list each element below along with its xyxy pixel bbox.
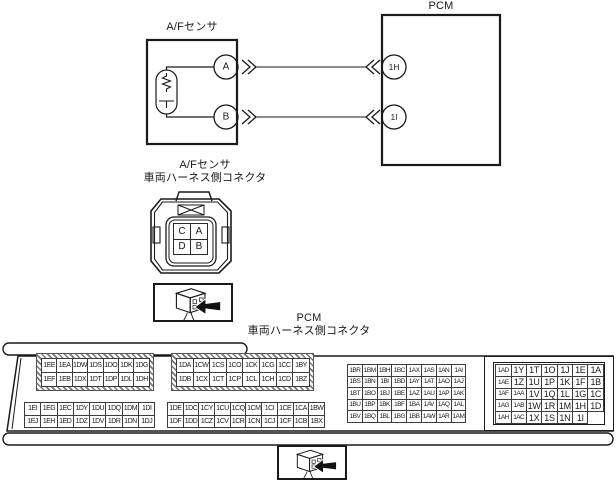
pin-1AM: 1AM xyxy=(451,410,467,423)
pin-1CW: 1CW xyxy=(193,358,211,373)
pin-1CM: 1CM xyxy=(245,402,262,416)
pin-1DV: 1DV xyxy=(89,415,106,429)
pin-1EH: 1EH xyxy=(40,415,57,429)
pin-1BG: 1BG xyxy=(391,410,407,423)
pin-1BL: 1BL xyxy=(377,410,393,423)
pin-1EA: 1EA xyxy=(56,358,72,373)
pin-1DF: 1DF xyxy=(167,415,184,429)
pin-1DC: 1DC xyxy=(183,402,200,416)
pin-1CT: 1CT xyxy=(209,372,227,387)
sensor-connector-caption-line2: 車両ハーネス側コネクタ xyxy=(100,172,310,185)
schematic-drawing: A B 1H 1I xyxy=(0,0,616,185)
pin-1BY: 1BY xyxy=(292,358,310,373)
pin-1CP: 1CP xyxy=(226,372,244,387)
pin-1CD: 1CD xyxy=(276,372,294,387)
pin-1BZ: 1BZ xyxy=(292,372,310,387)
pin-1CA: 1CA xyxy=(293,402,310,416)
pin-1DG: 1DG xyxy=(133,358,149,373)
pin-C: C xyxy=(173,223,191,240)
pin-1EC: 1EC xyxy=(57,402,74,416)
pin-1CU: 1CU xyxy=(214,402,231,416)
wire-leads xyxy=(184,313,194,320)
pcm-pin-block-upper-mid: 1DA1CW1CS1CO1CK1CG1CC1BY1DB1CX1CT1CP1CL1… xyxy=(171,353,314,391)
pcm-pin-block-far-right-frame: 1AD1Y1T1O1J1E1A1AE1Z1U1P1K1F1B1AF1AA1V1Q… xyxy=(484,356,614,431)
pcm-connector-caption-line2: 車両ハーネス側コネクタ xyxy=(209,325,409,338)
pin-1I: 1I xyxy=(572,411,588,424)
pin-1DM: 1DM xyxy=(122,402,139,416)
pin-1DI: 1DI xyxy=(138,402,155,416)
heater-element-icon xyxy=(156,70,177,114)
pin-1ED: 1ED xyxy=(57,415,74,429)
sensor-pin-a-label: A xyxy=(223,62,230,73)
pcm-pin-1h-label: 1H xyxy=(389,62,400,72)
sensor-pin-b-label: B xyxy=(223,112,230,123)
pin-1EB: 1EB xyxy=(56,372,72,387)
pin-1DW: 1DW xyxy=(72,358,88,373)
pin-1BQ: 1BQ xyxy=(362,410,378,423)
pin-1CK: 1CK xyxy=(242,358,260,373)
pin-1AR: 1AR xyxy=(436,410,452,423)
pin-1DJ: 1DJ xyxy=(138,415,155,429)
pin-1EI: 1EI xyxy=(24,402,41,416)
insertion-arrow-icon xyxy=(314,459,337,473)
pcm-pin-block-lower-mid: 1DE1DC1CY1CU1CQ1CM1CI1CE1CA1BW1DF1DD1CZ1… xyxy=(167,402,324,427)
pcm-connector-caption-line1: PCM xyxy=(209,312,409,325)
pin-1DO: 1DO xyxy=(103,358,119,373)
sensor-connector-pin-grid: CADB xyxy=(173,223,207,254)
wire-leads xyxy=(304,471,313,478)
pin-1EJ: 1EJ xyxy=(24,415,41,429)
connector-view-icon-box-2 xyxy=(277,445,347,480)
connector-rail-bottom xyxy=(3,433,613,445)
pin-1CI: 1CI xyxy=(261,402,278,416)
pin-1DY: 1DY xyxy=(73,402,90,416)
pin-1CJ: 1CJ xyxy=(261,415,278,429)
pin-1DS: 1DS xyxy=(87,358,103,373)
pin-1CE: 1CE xyxy=(277,402,294,416)
pin-1CH: 1CH xyxy=(259,372,277,387)
pin-1CL: 1CL xyxy=(242,372,260,387)
pin-1CG: 1CG xyxy=(259,358,277,373)
pin-1DZ: 1DZ xyxy=(73,415,90,429)
pin-1AW: 1AW xyxy=(421,410,437,423)
pcm-pin-block-far-right: 1AD1Y1T1O1J1E1A1AE1Z1U1P1K1F1B1AF1AA1V1Q… xyxy=(495,364,603,423)
pin-D: D xyxy=(173,239,191,256)
terminal-circles: A B 1H 1I xyxy=(214,55,406,129)
pin-1CO: 1CO xyxy=(226,358,244,373)
pin-1DD: 1DD xyxy=(183,415,200,429)
pcm-pin-block-upper-left: 1EE1EA1DW1DS1DO1DK1DG1EF1EB1DX1DT1DP1DL1… xyxy=(36,353,154,391)
pcm-pin-block-lower-left: 1EI1EG1EC1DY1DU1DQ1DM1DI1EJ1EH1ED1DZ1DV1… xyxy=(24,402,154,427)
pin-1EE: 1EE xyxy=(41,358,57,373)
pin-1BW: 1BW xyxy=(308,402,325,416)
pin-1CY: 1CY xyxy=(198,402,215,416)
wire-b xyxy=(167,114,215,117)
pin-1DE: 1DE xyxy=(167,402,184,416)
pin-1N: 1N xyxy=(557,411,573,424)
pin-1CX: 1CX xyxy=(193,372,211,387)
pin-1X: 1X xyxy=(526,411,542,424)
pin-1AH: 1AH xyxy=(495,411,511,424)
pin-1BB: 1BB xyxy=(406,410,422,423)
pin-1CV: 1CV xyxy=(214,415,231,429)
pin-1DT: 1DT xyxy=(87,372,103,387)
pin-1CZ: 1CZ xyxy=(198,415,215,429)
pin-1EG: 1EG xyxy=(40,402,57,416)
pin-1CN: 1CN xyxy=(245,415,262,429)
pin-1DB: 1DB xyxy=(176,372,194,387)
wiring-diagram-page: { "top_diagram": { "sensor_label": "A/Fセ… xyxy=(0,0,616,484)
pin-1DP: 1DP xyxy=(103,372,119,387)
pin-1S: 1S xyxy=(541,411,557,424)
sensor-connector-caption: A/Fセンサ 車両ハーネス側コネクタ xyxy=(100,159,310,185)
pin-1DQ: 1DQ xyxy=(105,402,122,416)
pin-1CF: 1CF xyxy=(277,415,294,429)
pin-1DA: 1DA xyxy=(176,358,194,373)
pin-1DL: 1DL xyxy=(118,372,134,387)
pin-1BX: 1BX xyxy=(308,415,325,429)
pcm-pin-block-right-mid: 1BR1BM1BH1BC1AX1AS1AN1AI1BS1BN1BI1BD1AY1… xyxy=(347,364,465,422)
connector-direction-icon xyxy=(279,447,345,478)
connector-keying-mark xyxy=(178,205,204,215)
pin-1DH: 1DH xyxy=(133,372,149,387)
pin-1BV: 1BV xyxy=(347,410,363,423)
pin-1CB: 1CB xyxy=(293,415,310,429)
pin-1CR: 1CR xyxy=(230,415,247,429)
pin-1DN: 1DN xyxy=(122,415,139,429)
pin-1CC: 1CC xyxy=(276,358,294,373)
pin-1DK: 1DK xyxy=(118,358,134,373)
pin-1CS: 1CS xyxy=(209,358,227,373)
pcm-pin-1i-label: 1I xyxy=(390,112,397,122)
pin-1DU: 1DU xyxy=(89,402,106,416)
pin-1DX: 1DX xyxy=(72,372,88,387)
sensor-connector-caption-line1: A/Fセンサ xyxy=(100,159,310,172)
pcm-connector-caption: PCM 車両ハーネス側コネクタ xyxy=(209,312,409,337)
pin-1AC: 1AC xyxy=(511,411,527,424)
pin-1DR: 1DR xyxy=(105,415,122,429)
pin-1EF: 1EF xyxy=(41,372,57,387)
pcm-box xyxy=(382,15,500,165)
pin-A: A xyxy=(190,223,208,240)
wire-a xyxy=(167,67,215,70)
inline-connector-icon xyxy=(242,60,380,124)
pin-1CQ: 1CQ xyxy=(230,402,247,416)
pin-B: B xyxy=(190,239,208,256)
